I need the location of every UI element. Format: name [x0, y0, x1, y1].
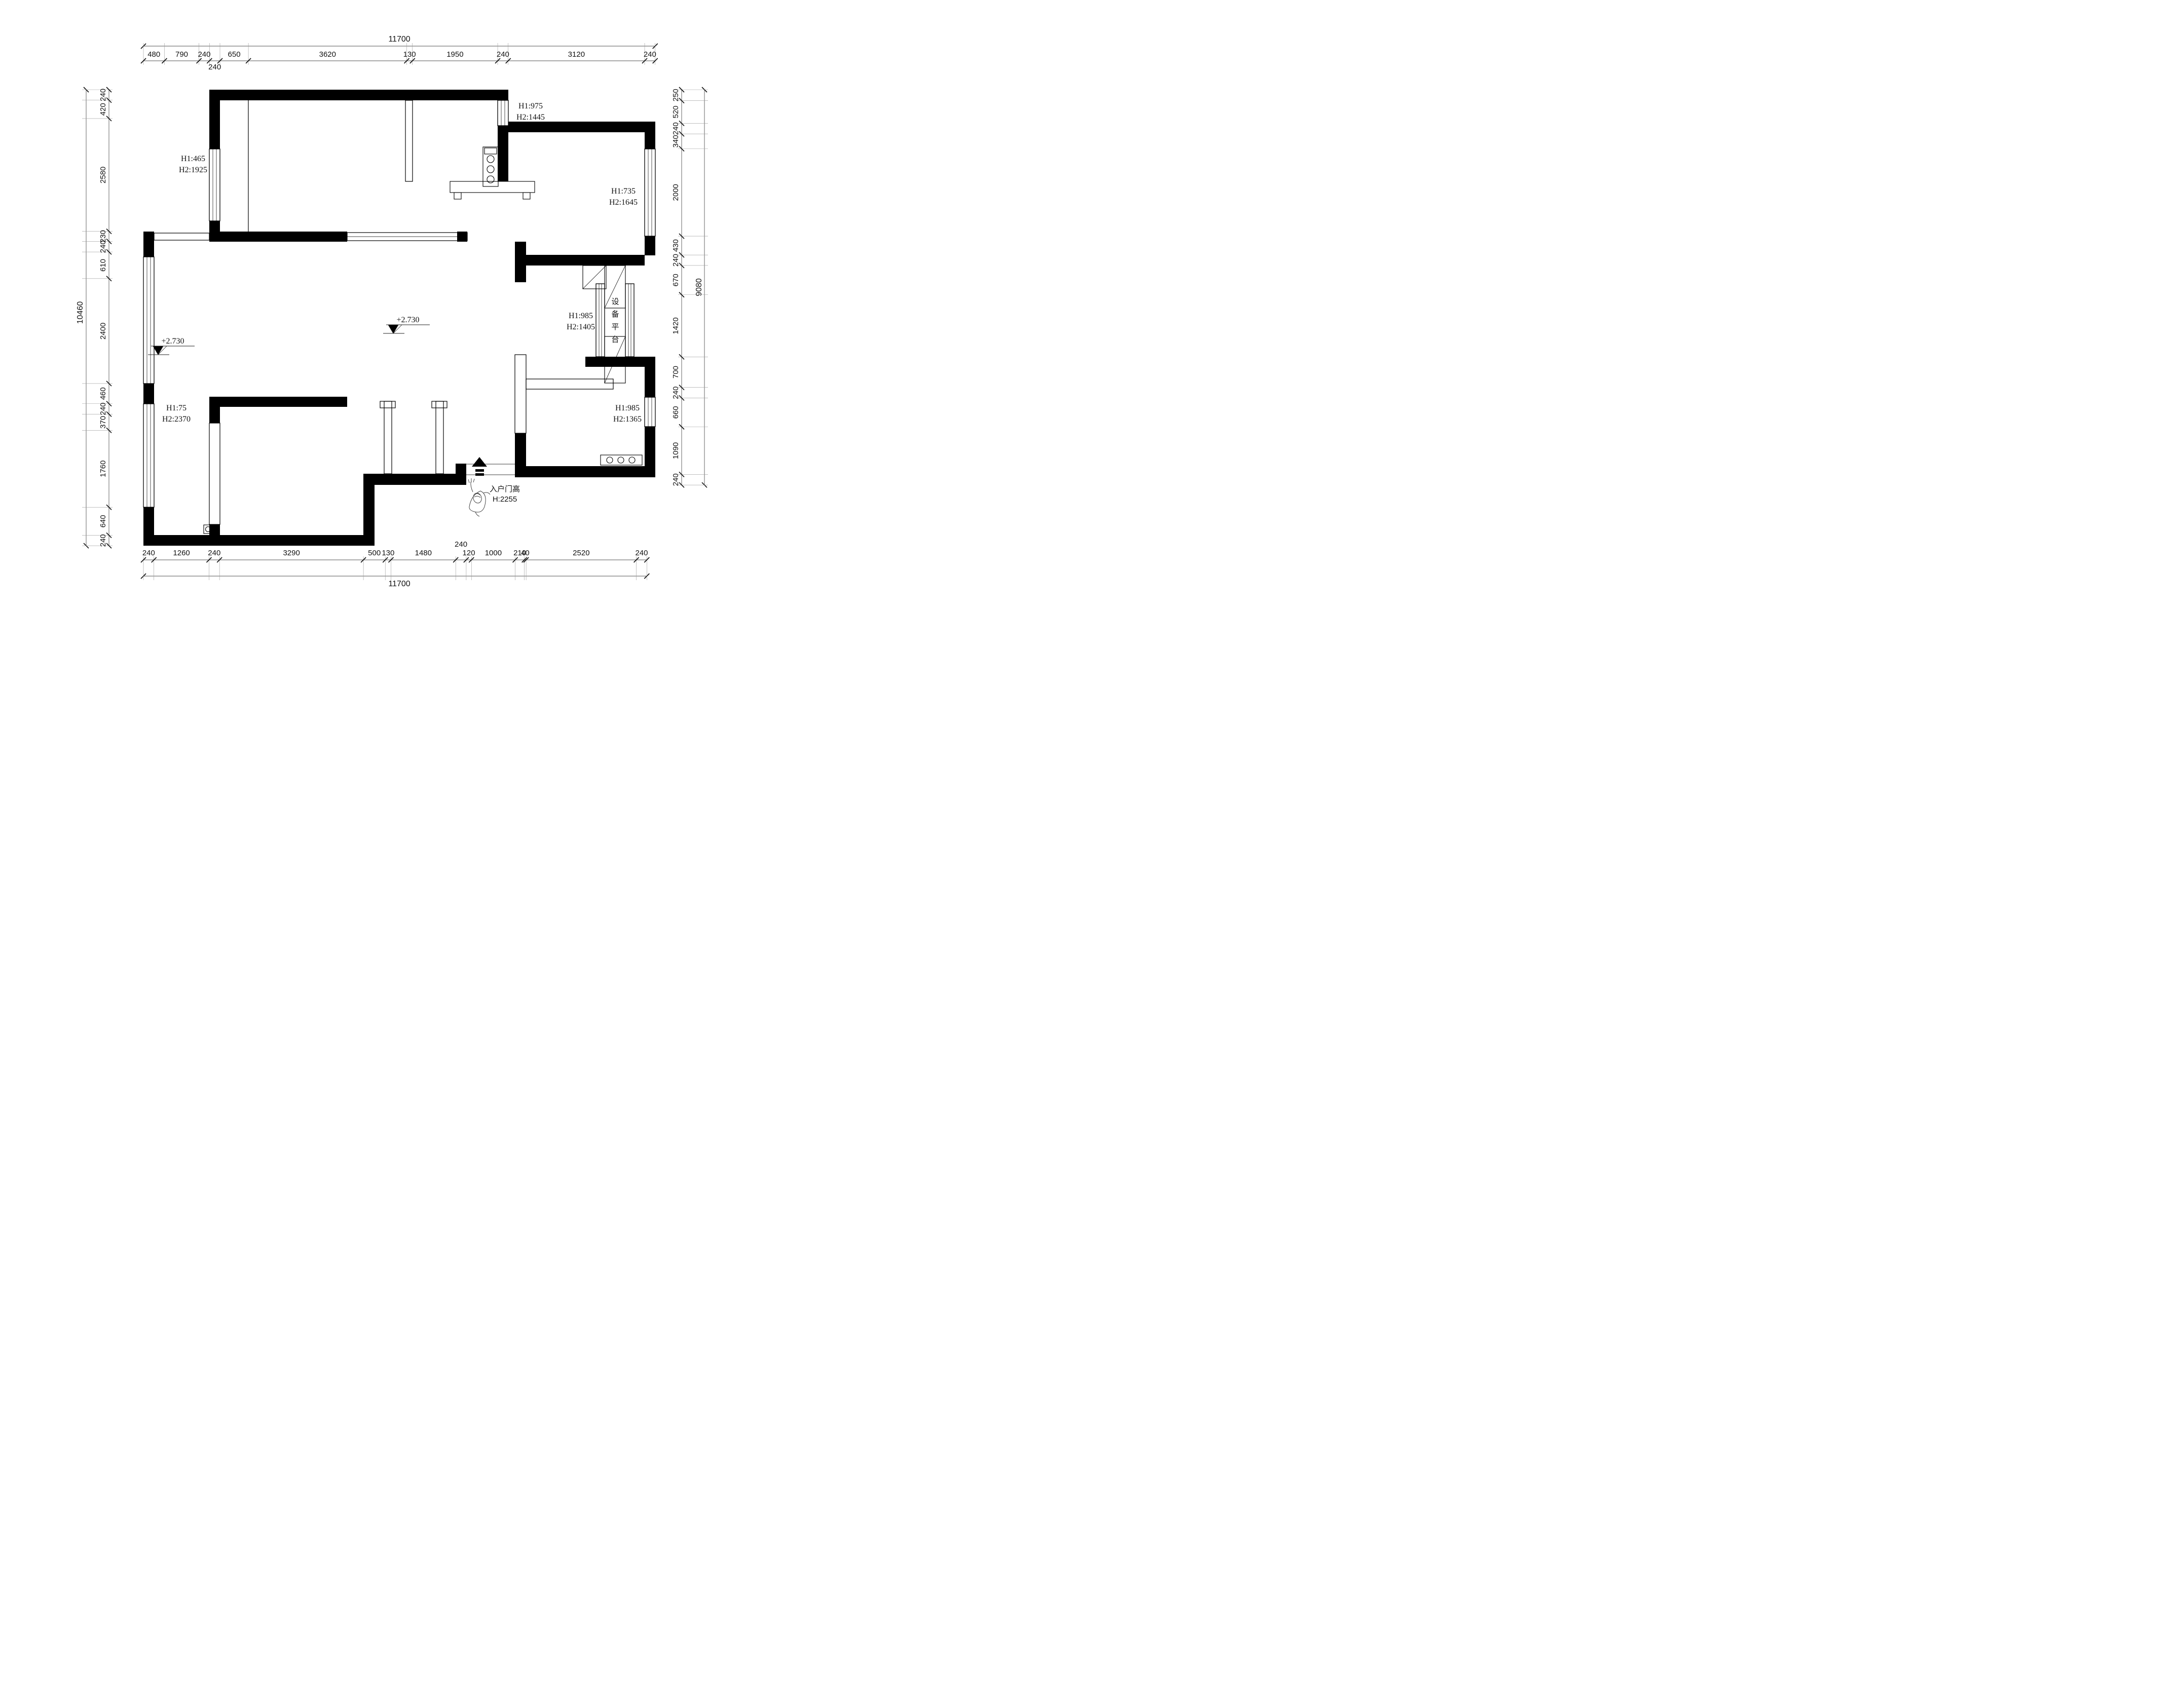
dimension-label: 640	[99, 515, 107, 527]
dimension-label: 3290	[283, 549, 300, 557]
dimension-label: 240	[198, 50, 210, 59]
dimension-label: 2400	[99, 323, 107, 339]
window-height-label: H1:735	[611, 187, 636, 196]
level-marker	[148, 346, 195, 355]
kitchen-counter	[450, 181, 535, 199]
overall-dimension-label: 9080	[695, 278, 703, 296]
dimension-label: 240	[142, 549, 155, 557]
window	[645, 397, 655, 427]
window-height-label: H1:975	[518, 102, 543, 110]
dimension-label: 240	[644, 50, 656, 59]
dimension-label: 1000	[485, 549, 502, 557]
dimension-label: 1950	[446, 50, 463, 59]
window-height-label: H1:985	[615, 404, 640, 412]
overall-dimension-label: 10460	[76, 301, 85, 324]
window	[645, 149, 655, 236]
dimension-label: 670	[672, 274, 680, 286]
dimension-label: 1090	[672, 442, 680, 459]
dimension-label: 240	[672, 473, 680, 486]
wall	[220, 397, 347, 407]
window-height-label: H1:75	[166, 404, 187, 412]
dimension-label: 240	[208, 63, 221, 71]
dimension-label: 1420	[672, 317, 680, 334]
window	[143, 404, 154, 507]
dimension-label: 1260	[173, 549, 190, 557]
dimension-label: 500	[368, 549, 381, 557]
text-labels: H1:465H2:1925H1:975H2:1445H1:735H2:1645H…	[161, 102, 642, 504]
door-pillar-cap	[380, 401, 395, 408]
wall	[143, 384, 154, 404]
dimension-label: 2580	[99, 167, 107, 183]
window-height-label: H2:1405	[567, 323, 595, 331]
equipment-platform-label: 备	[611, 310, 619, 319]
cased-opening	[154, 233, 209, 240]
window	[143, 257, 154, 384]
dimension-label: 130	[403, 50, 416, 59]
window	[596, 284, 605, 357]
dimension-label: 40	[521, 549, 530, 557]
window-height-label: H1:465	[181, 155, 205, 163]
dimension-label: 370	[99, 416, 107, 429]
dimension-label: 240	[672, 122, 680, 135]
stove	[483, 147, 498, 186]
wall	[456, 464, 466, 485]
window-height-label: H2:1925	[179, 166, 207, 174]
dimension-label: 240	[672, 387, 680, 399]
thin-structures	[154, 100, 613, 524]
window	[498, 100, 508, 126]
dimension-label: 240	[99, 240, 107, 253]
wall	[143, 535, 363, 546]
window-height-label: H2:2370	[162, 415, 191, 424]
wall	[645, 236, 655, 255]
level-label: +2.730	[161, 337, 184, 346]
cased-wall	[515, 355, 526, 433]
dimension-label: 650	[228, 50, 241, 59]
wall	[363, 474, 375, 546]
overall-dimension-label: 11700	[388, 35, 410, 44]
partition-stub	[405, 100, 413, 181]
wall	[515, 242, 526, 282]
level-markers	[148, 325, 430, 355]
door-pillar-cap	[432, 401, 447, 408]
door-pillar	[384, 401, 392, 474]
dimension-label: 700	[672, 366, 680, 378]
wall	[363, 474, 456, 485]
entry-arrow-bar	[475, 473, 484, 476]
wall	[209, 100, 220, 149]
dimension-label: 790	[175, 50, 188, 59]
dimension-label: 520	[672, 105, 680, 118]
dimension-label: 240	[635, 549, 648, 557]
wall	[645, 122, 655, 149]
wall	[585, 357, 655, 367]
cased-wall	[209, 423, 220, 524]
wall	[526, 255, 645, 265]
wall	[209, 397, 220, 423]
dimension-label: 120	[463, 549, 475, 557]
dimension-label: 240	[455, 540, 467, 549]
window-height-label: H2:1365	[613, 415, 642, 424]
window	[209, 149, 220, 221]
entry-arrow-icon	[472, 457, 487, 467]
counter	[526, 379, 613, 389]
dimension-label: 240	[99, 402, 107, 415]
entry-arrow-bar	[475, 469, 484, 472]
level-label: +2.730	[396, 316, 419, 324]
dimension-label: 250	[672, 89, 680, 101]
dimension-label: 420	[99, 103, 107, 116]
dimension-label: 240	[99, 89, 107, 101]
equipment-platform-label: 设	[611, 297, 619, 306]
dimension-label: 480	[147, 50, 160, 59]
wall	[498, 126, 508, 181]
dimension-label: 1760	[99, 461, 107, 477]
dimension-label: 340	[672, 135, 680, 147]
window-height-label: H2:1645	[609, 198, 638, 207]
wall	[143, 232, 154, 257]
dimension-label: 2000	[672, 184, 680, 201]
wall	[209, 90, 508, 100]
wall	[515, 455, 526, 477]
dimension-label: 240	[672, 254, 680, 267]
dimension-label: 660	[672, 406, 680, 419]
floor-plan-canvas: 4807902402406503620130195024031202401170…	[0, 0, 784, 619]
dimension-label: 610	[99, 259, 107, 272]
dimension-label: 240	[99, 534, 107, 547]
dimension-label: 130	[382, 549, 394, 557]
wall	[209, 232, 347, 242]
floor-plan-page: 4807902402406503620130195024031202401170…	[0, 0, 784, 619]
entrance-label: 入户门高	[490, 485, 520, 494]
window-height-label: H2:1445	[516, 113, 545, 122]
equipment-platform-label: 台	[611, 335, 619, 344]
overall-dimension-label: 11700	[388, 580, 410, 588]
window	[625, 284, 634, 357]
dimension-label: 1480	[415, 549, 432, 557]
level-marker	[383, 325, 430, 333]
door-pillar	[436, 401, 443, 474]
dimension-label: 240	[497, 50, 509, 59]
dimension-label: 460	[99, 387, 107, 400]
equipment-platform-label: 平	[611, 323, 619, 331]
entrance-height-label: H:2255	[493, 495, 517, 504]
person-figure	[468, 478, 490, 516]
dimension-label: 3120	[568, 50, 585, 59]
sink-counter	[601, 455, 642, 465]
wall	[645, 367, 655, 397]
dimension-label: 3620	[319, 50, 336, 59]
wall	[515, 466, 647, 477]
dimension-label: 240	[208, 549, 220, 557]
entrance	[468, 457, 490, 516]
wall	[498, 122, 655, 132]
dimension-label: 2520	[573, 549, 589, 557]
window-height-label: H1:985	[569, 312, 593, 320]
dimension-label: 430	[672, 239, 680, 252]
